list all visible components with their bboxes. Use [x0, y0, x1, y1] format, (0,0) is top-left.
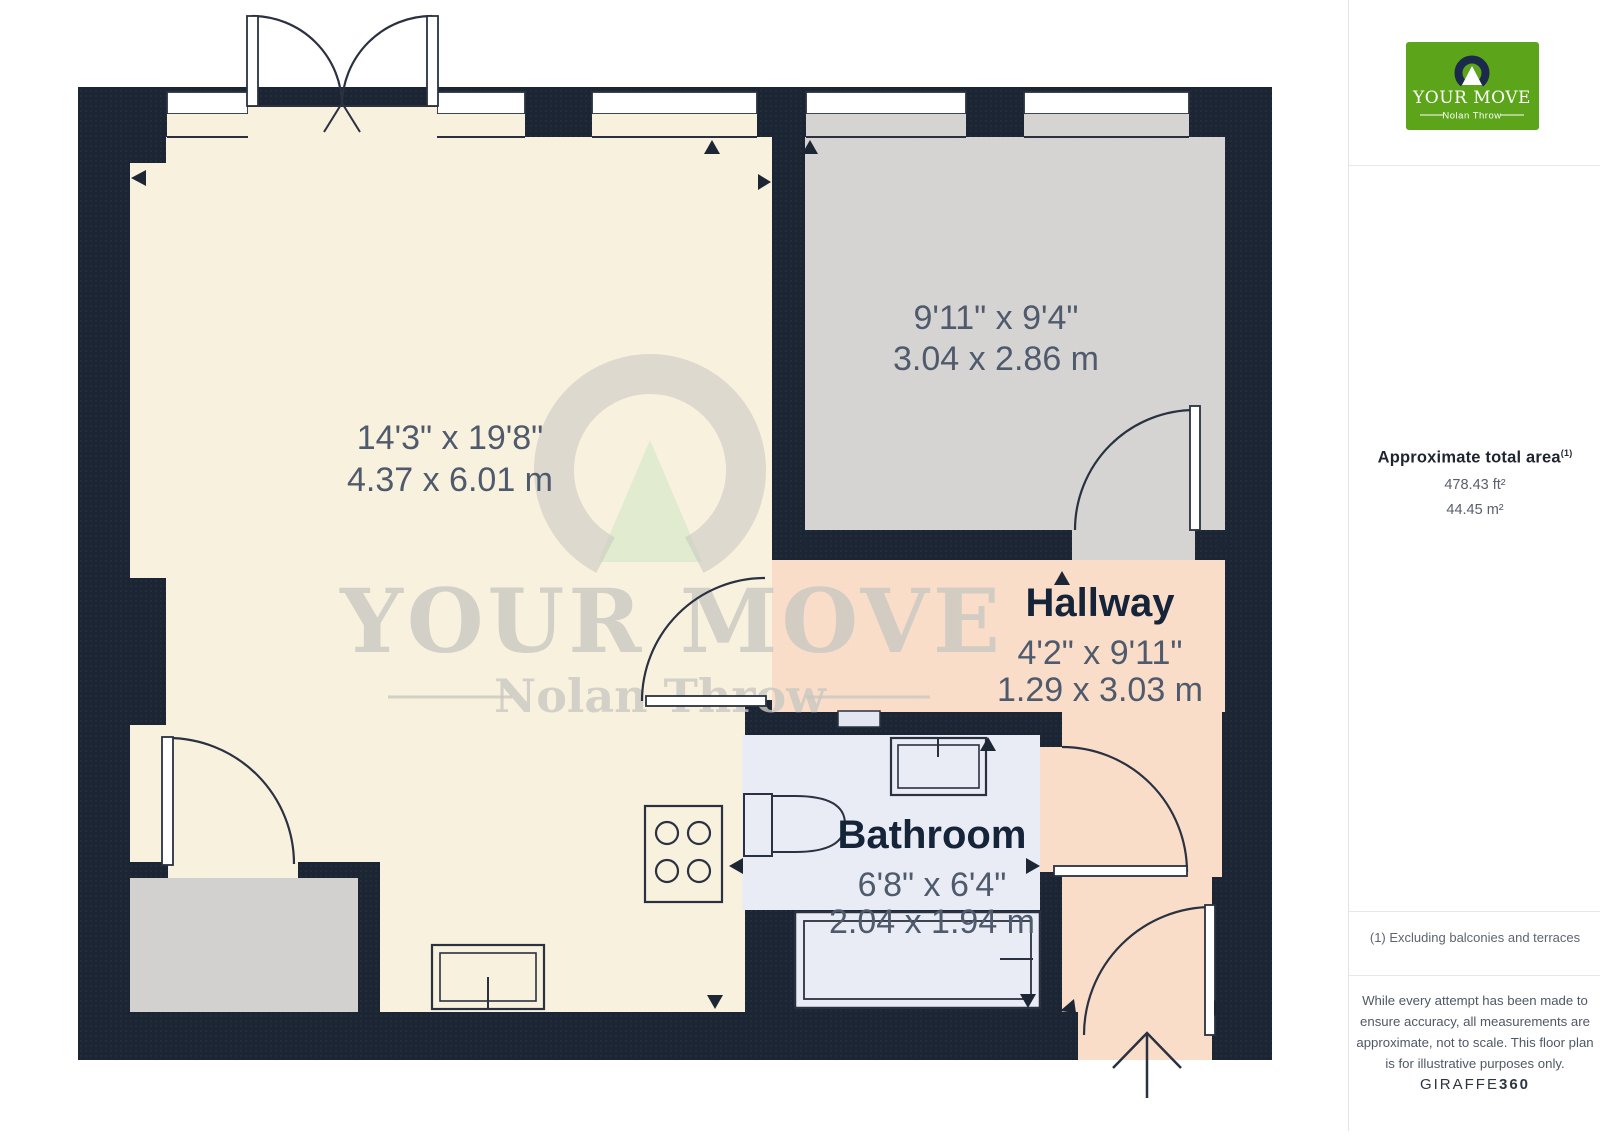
living-room-dims-metric: 4.37 x 6.01 m	[347, 461, 553, 499]
window-1	[167, 92, 248, 114]
window-2	[437, 92, 525, 114]
total-area-metric: 44.45 m²	[1349, 502, 1600, 518]
giraffe360-brand-suffix: 360	[1499, 1076, 1530, 1093]
sidebar-divider-3	[1349, 975, 1600, 976]
window-4	[806, 92, 966, 114]
logo-sub-text: Nolan Throw	[1442, 111, 1501, 122]
info-sidebar: YOUR MOVE Nolan Throw Approximate total …	[1348, 0, 1600, 1131]
bathroom-dims-metric: 2.04 x 1.94 m	[829, 903, 1035, 941]
total-area-imperial: 478.43 ft²	[1349, 477, 1600, 493]
windows	[167, 16, 1189, 137]
agency-logo-svg: YOUR MOVE Nolan Throw	[1406, 42, 1539, 130]
bedroom-dims-imperial: 9'11" x 9'4"	[913, 299, 1078, 337]
giraffe360-brand: GIRAFFE360	[1349, 1076, 1600, 1093]
giraffe360-brand-name: GIRAFFE	[1420, 1076, 1499, 1093]
exclusions-footnote: (1) Excluding balconies and terraces	[1349, 930, 1600, 945]
accuracy-disclaimer: While every attempt has been made to ens…	[1349, 990, 1600, 1074]
agency-logo: YOUR MOVE Nolan Throw	[1406, 42, 1539, 130]
hallway-dims-imperial: 4'2" x 9'11"	[1017, 634, 1182, 672]
window-recess-2	[437, 114, 525, 137]
total-area-title: Approximate total area(1)	[1349, 448, 1600, 468]
total-area-block: Approximate total area(1) 478.43 ft² 44.…	[1349, 448, 1600, 518]
sidebar-divider-1	[1349, 165, 1600, 166]
french-door-leaf-right	[427, 16, 438, 106]
living-room-dims-imperial: 14'3" x 19'8"	[357, 419, 543, 457]
total-area-title-text: Approximate total area	[1378, 449, 1561, 467]
french-door-leaf-left	[247, 16, 258, 106]
window-recess-4	[806, 114, 966, 137]
window-5	[1024, 92, 1189, 114]
toilet	[744, 794, 845, 856]
window-recess-3	[592, 114, 757, 137]
kitchen-sink	[432, 945, 544, 1009]
bathroom-dims-imperial: 6'8" x 6'4"	[858, 866, 1007, 904]
floorplan-canvas: YOUR MOVE Nolan Throw	[0, 0, 1320, 1131]
french-door-threshold	[248, 106, 437, 137]
bedroom-dims-metric: 3.04 x 2.86 m	[893, 340, 1099, 378]
logo-brand-text: YOUR MOVE	[1412, 88, 1531, 108]
hallway-dims-metric: 1.29 x 3.03 m	[997, 671, 1203, 709]
floorplan-svg: YOUR MOVE Nolan Throw	[0, 0, 1320, 1131]
hallway-label: Hallway	[1026, 581, 1176, 625]
window-3	[592, 92, 757, 114]
total-area-footnote-marker: (1)	[1561, 448, 1573, 458]
sidebar-divider-2	[1349, 911, 1600, 912]
window-recess-1	[167, 114, 248, 137]
stove	[645, 806, 722, 902]
wall-niche	[838, 711, 880, 727]
bathroom-label: Bathroom	[838, 813, 1027, 857]
bathroom-sink	[891, 738, 986, 795]
window-recess-5	[1024, 114, 1189, 137]
